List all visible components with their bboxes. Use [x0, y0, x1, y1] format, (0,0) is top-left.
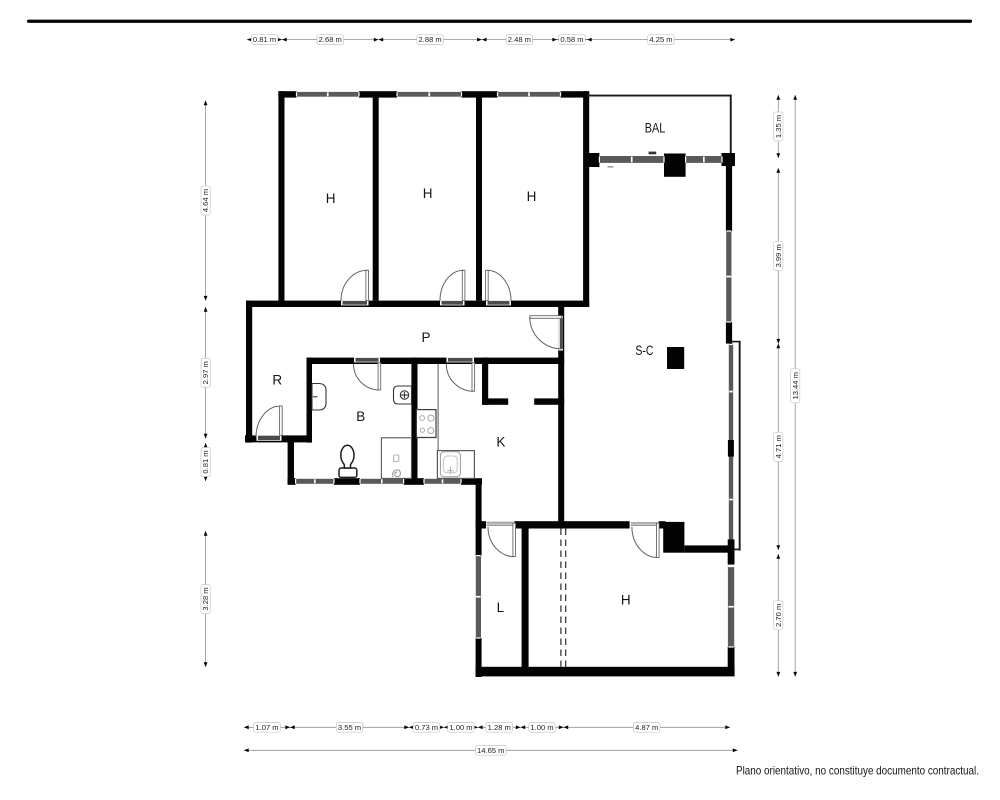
svg-text:R: R: [272, 373, 282, 388]
svg-text:S-C: S-C: [635, 343, 653, 358]
svg-text:4.87 m: 4.87 m: [635, 723, 658, 732]
svg-text:2.97 m: 2.97 m: [201, 361, 210, 384]
svg-text:0.81 m: 0.81 m: [253, 35, 276, 44]
svg-text:Plano orientativo, no constitu: Plano orientativo, no constituye documen…: [736, 765, 979, 778]
svg-text:13.44 m: 13.44 m: [791, 372, 800, 399]
svg-text:K: K: [496, 435, 505, 450]
svg-text:B: B: [356, 409, 365, 424]
svg-text:3.28 m: 3.28 m: [201, 587, 210, 610]
svg-text:2.48 m: 2.48 m: [508, 35, 531, 44]
svg-text:BAL: BAL: [645, 120, 666, 135]
svg-text:0.58 m: 0.58 m: [560, 35, 583, 44]
svg-text:1.35 m: 1.35 m: [774, 115, 783, 138]
svg-text:4.25 m: 4.25 m: [649, 35, 672, 44]
svg-text:H: H: [621, 593, 631, 608]
svg-text:0.81 m: 0.81 m: [201, 450, 210, 473]
svg-text:2.68 m: 2.68 m: [319, 35, 342, 44]
svg-text:1.00 m: 1.00 m: [530, 723, 553, 732]
svg-text:1.07 m: 1.07 m: [255, 723, 278, 732]
svg-text:0.73 m: 0.73 m: [415, 723, 438, 732]
svg-text:3.55 m: 3.55 m: [338, 723, 361, 732]
svg-text:H: H: [423, 186, 433, 201]
svg-text:1.28 m: 1.28 m: [488, 723, 511, 732]
svg-text:3.99 m: 3.99 m: [774, 244, 783, 267]
svg-text:14.65 m: 14.65 m: [477, 746, 504, 755]
svg-text:4.71 m: 4.71 m: [774, 435, 783, 458]
svg-text:H: H: [326, 191, 336, 206]
svg-text:4.64 m: 4.64 m: [201, 189, 210, 212]
svg-text:2.70 m: 2.70 m: [774, 604, 783, 627]
svg-text:2.88 m: 2.88 m: [419, 35, 442, 44]
svg-text:P: P: [421, 330, 430, 345]
svg-text:L: L: [497, 600, 505, 615]
svg-text:H: H: [527, 189, 537, 204]
svg-text:1.00 m: 1.00 m: [449, 723, 472, 732]
